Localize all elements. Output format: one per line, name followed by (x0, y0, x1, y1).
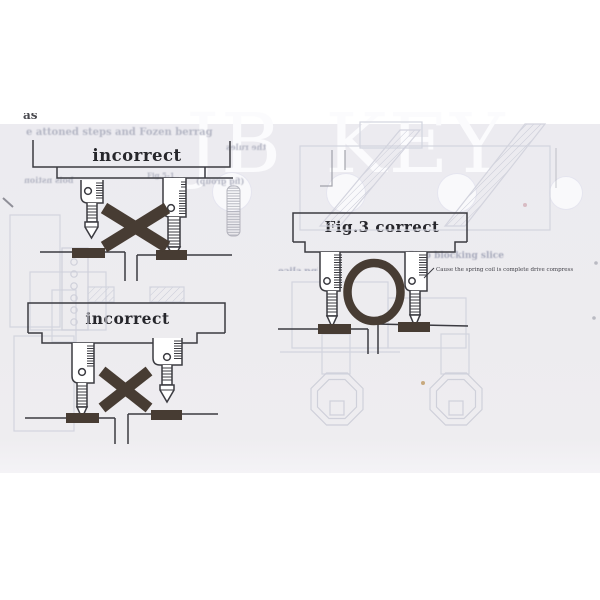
figure-bottom-incorrect-drawing (25, 303, 225, 444)
figure-top-incorrect-drawing (33, 140, 233, 281)
top-clipped-text: as described. (23, 113, 89, 126)
x-mark (102, 371, 149, 408)
tracer-tool (320, 252, 342, 327)
carriage-shelf (57, 167, 233, 178)
key-block-left (318, 324, 351, 334)
instruction-line-art (0, 0, 600, 600)
cutter-tool (153, 338, 182, 402)
carriage-bracket (293, 213, 467, 242)
clamp-lines (40, 252, 232, 281)
key-block-right (398, 322, 430, 332)
tracer-tool (72, 343, 94, 418)
key-block-left (66, 413, 99, 423)
cutter-tool (405, 252, 434, 327)
key-block-left (72, 248, 105, 258)
circle-ok-mark (348, 263, 401, 321)
carriage-shelf (28, 333, 225, 343)
carriage-shelf (293, 242, 467, 252)
figure-correct-drawing (278, 213, 468, 354)
key-block-right (156, 250, 187, 260)
carriage-bracket (33, 140, 230, 167)
carriage-bracket (28, 303, 225, 333)
clamp-lines (278, 324, 468, 354)
x-mark (104, 208, 167, 247)
key-block-right (151, 410, 182, 420)
tracer-tool (81, 180, 103, 238)
scanned-manual-page: as described. (0, 0, 600, 600)
clamp-lines (25, 414, 218, 444)
